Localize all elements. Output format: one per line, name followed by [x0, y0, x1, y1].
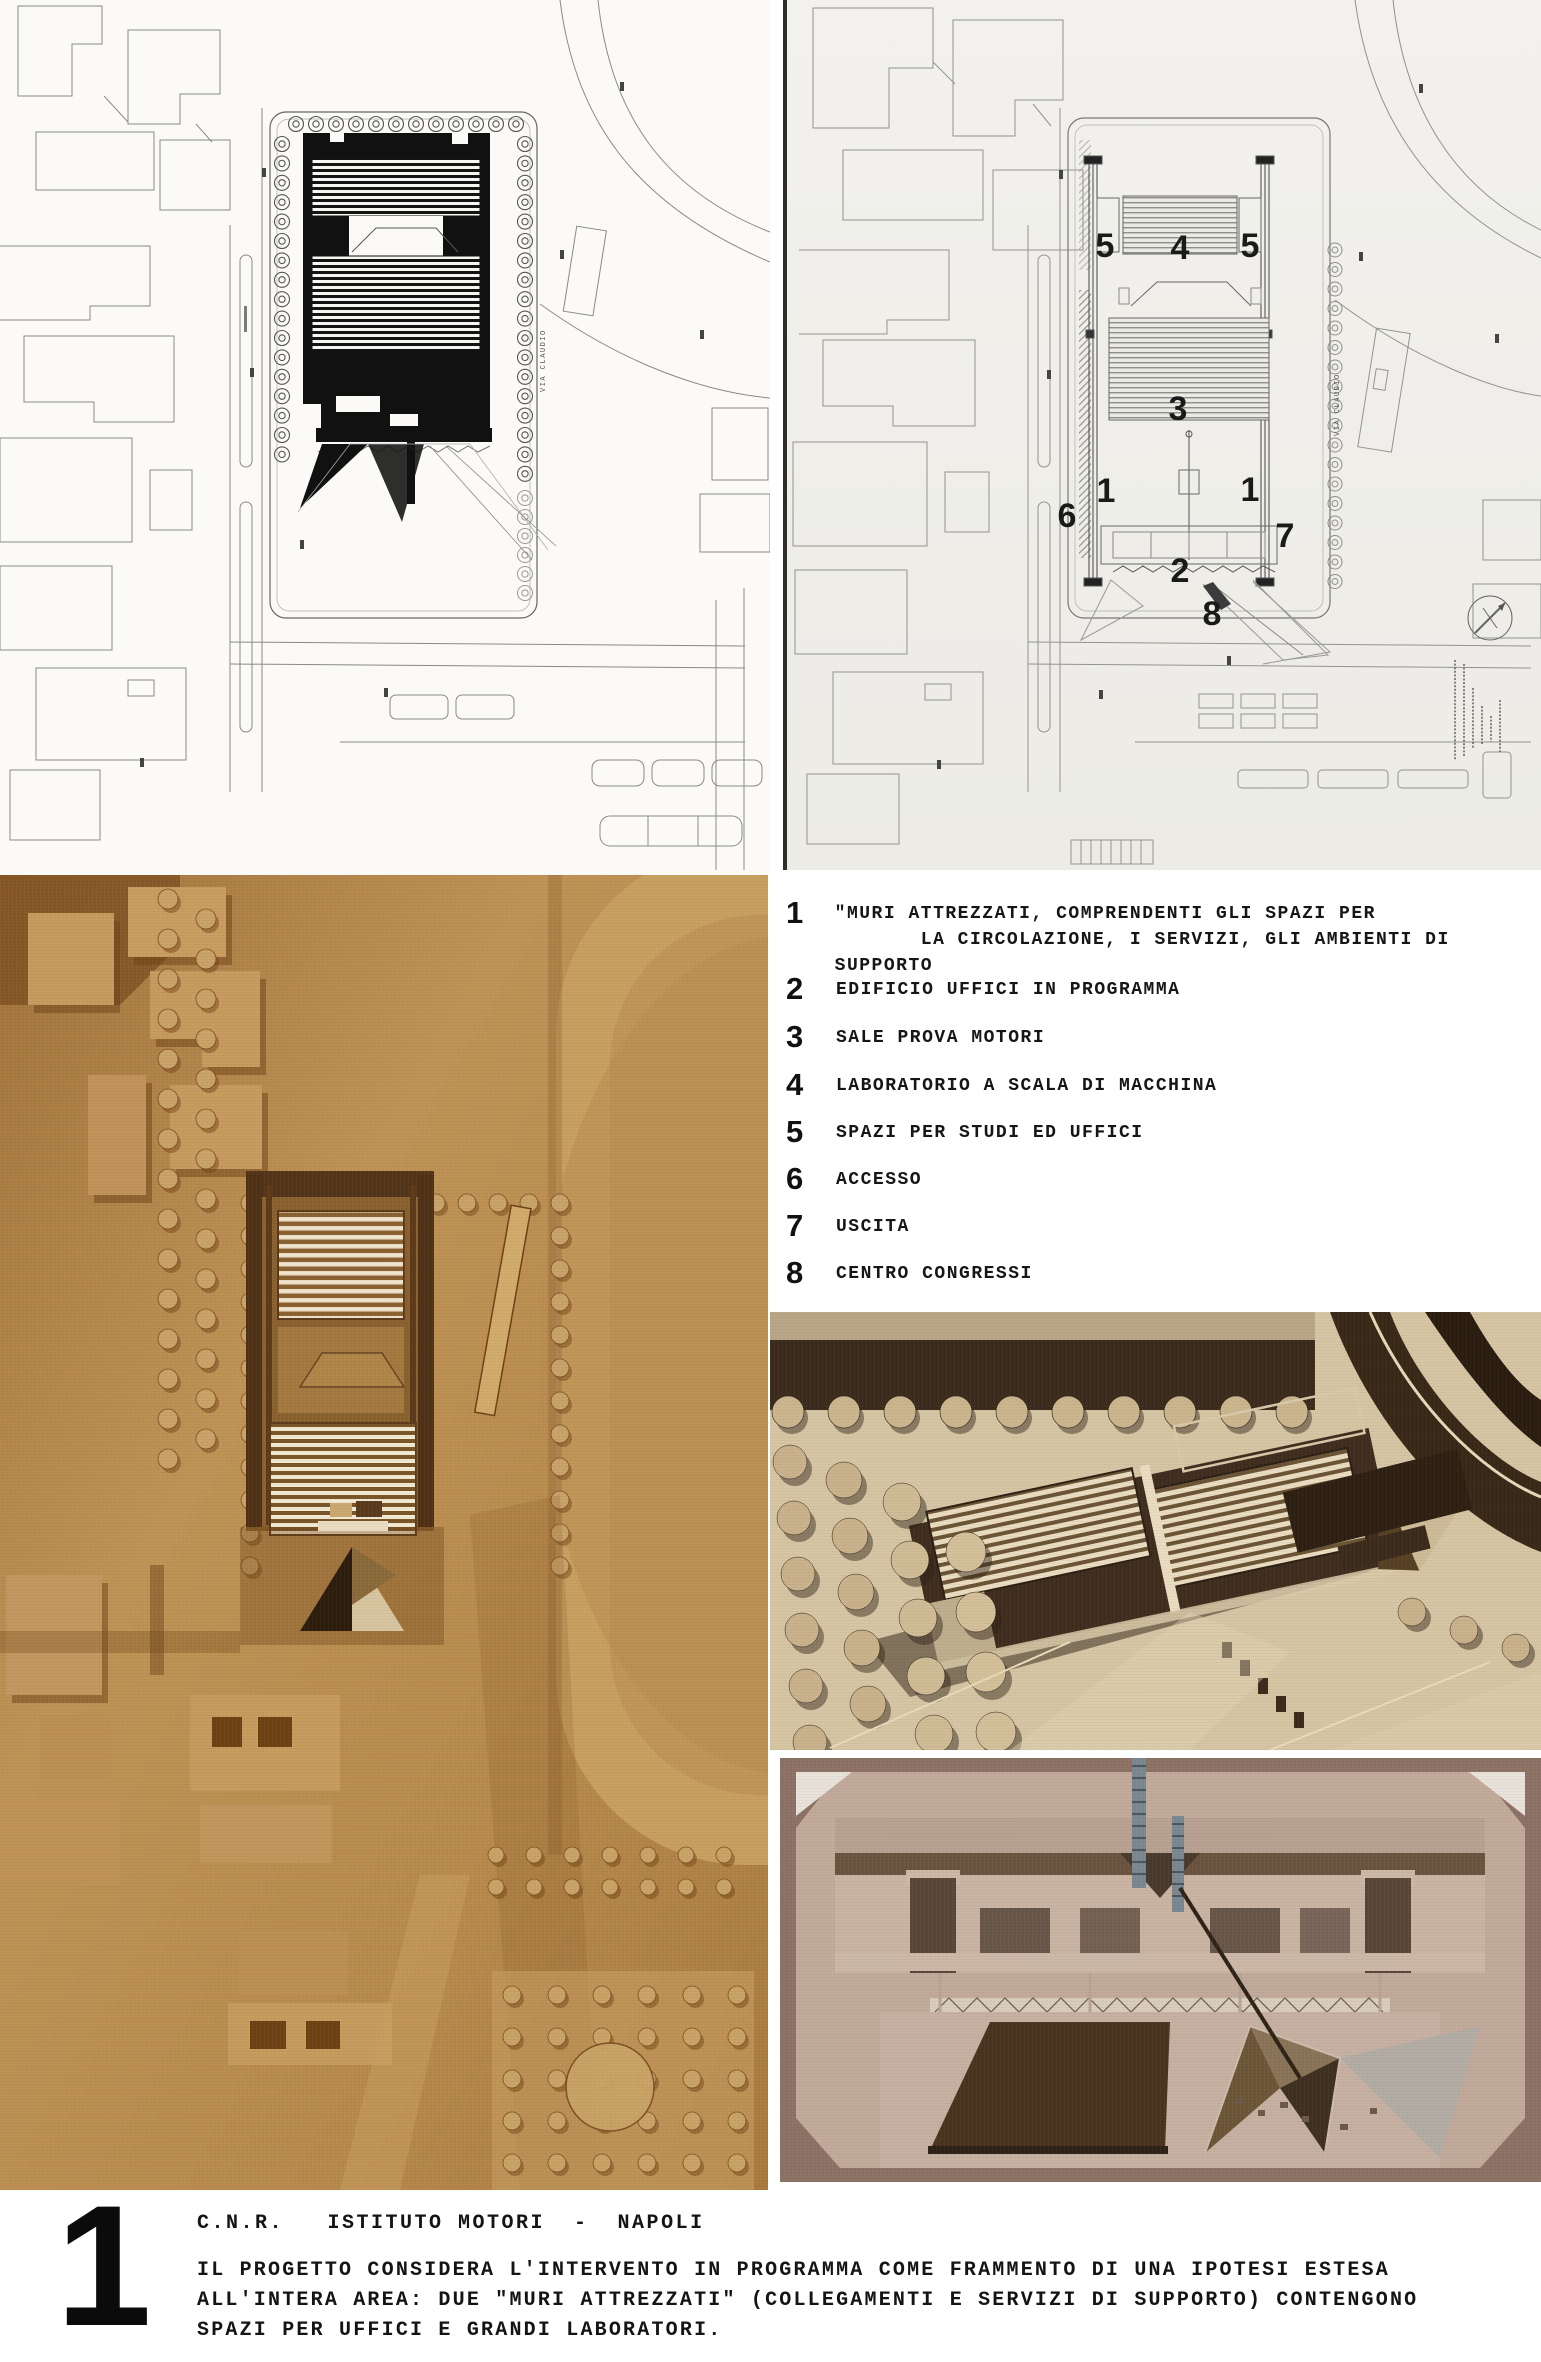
building-band — [835, 1853, 1485, 1973]
photo-model-perspective — [770, 1312, 1541, 1750]
model-building — [246, 1171, 434, 1535]
callout-5-left: 5 — [1096, 227, 1115, 265]
street-label-via-claudio: VIA CLAUDIO — [540, 329, 548, 392]
legend-item-8: 8CENTRO CONGRESSI — [786, 1252, 1033, 1290]
legend-num: 5 — [786, 1111, 836, 1149]
oval-track — [540, 875, 768, 1865]
callout-3: 3 — [1169, 390, 1188, 428]
site-plan-right-drawing: 5 4 5 3 1 1 6 7 2 8 — [783, 0, 1541, 870]
photo-model-top-view — [780, 1758, 1541, 2182]
model-perspective-drawing — [770, 1312, 1541, 1750]
legend-num: 2 — [786, 968, 836, 1006]
program-legend: 1"MURI ATTREZZATI, COMPRENDENTI GLI SPAZ… — [783, 884, 1541, 1304]
round-plaza — [566, 2043, 654, 2131]
legend-label: EDIFICIO UFFICI IN PROGRAMMA — [836, 968, 1180, 1003]
legend-num: 3 — [786, 1016, 836, 1054]
callout-8: 8 — [1203, 595, 1222, 633]
caption-block: 1 C.N.R. ISTITUTO MOTORI - NAPOLI IL PRO… — [0, 2190, 1541, 2362]
legend-num: 8 — [786, 1252, 836, 1290]
site-plan-left: VIA CLAUDIO — [0, 0, 770, 875]
upper-ground — [835, 1818, 1485, 1856]
callout-7: 7 — [1276, 517, 1295, 555]
model-top-view-drawing — [780, 1758, 1541, 2182]
legend-label: "MURI ATTREZZATI, COMPRENDENTI GLI SPAZI… — [835, 892, 1541, 979]
legend-label: LABORATORIO A SCALA DI MACCHINA — [836, 1064, 1217, 1099]
legend-label: SALE PROVA MOTORI — [836, 1016, 1045, 1051]
legend-num: 6 — [786, 1158, 836, 1196]
building-program — [1081, 156, 1330, 664]
street-label-via-claudio: VIA CLAUDIO — [1334, 373, 1342, 436]
tree-dots-road-a — [158, 889, 181, 1473]
scan-edge — [783, 0, 787, 870]
caption-body: IL PROGETTO CONSIDERA L'INTERVENTO IN PR… — [197, 2256, 1487, 2346]
callout-6: 6 — [1058, 497, 1077, 535]
legend-num: 4 — [786, 1064, 836, 1102]
legend-label: ACCESSO — [836, 1158, 922, 1193]
callout-2: 2 — [1171, 552, 1190, 590]
legend-label: SPAZI PER STUDI ED UFFICI — [836, 1111, 1144, 1146]
legend-item-5: 5SPAZI PER STUDI ED UFFICI — [786, 1111, 1144, 1149]
site-plan-right: 5 4 5 3 1 1 6 7 2 8 — [783, 0, 1541, 870]
legend-label: USCITA — [836, 1205, 910, 1240]
legend-item-7: 7USCITA — [786, 1205, 910, 1243]
legend-item-3: 3SALE PROVA MOTORI — [786, 1016, 1045, 1054]
presentation-board: VIA CLAUDIO — [0, 0, 1541, 2362]
pyramid-base-edge — [928, 2146, 1168, 2154]
legend-label: CENTRO CONGRESSI — [836, 1252, 1033, 1287]
legend-num: 1 — [786, 892, 835, 930]
figure-number: 1 — [56, 2186, 152, 2346]
callout-1-right: 1 — [1241, 471, 1260, 509]
caption-title: C.N.R. ISTITUTO MOTORI - NAPOLI — [197, 2212, 705, 2235]
callout-1-left: 1 — [1097, 472, 1116, 510]
north-compass-icon — [1468, 596, 1512, 640]
callout-5-right: 5 — [1241, 227, 1260, 265]
callout-4: 4 — [1171, 229, 1190, 267]
street-marks — [937, 84, 1499, 769]
legend-item-4: 4LABORATORIO A SCALA DI MACCHINA — [786, 1064, 1217, 1102]
photo-wood-model-aerial — [0, 875, 768, 2190]
site-plan-left-drawing: VIA CLAUDIO — [0, 0, 770, 875]
legend-item-2: 2EDIFICIO UFFICI IN PROGRAMMA — [786, 968, 1180, 1006]
bg-wall — [770, 1312, 1315, 1342]
legend-item-6: 6ACCESSO — [786, 1158, 922, 1196]
legend-num: 7 — [786, 1205, 836, 1243]
wood-model-drawing — [0, 875, 768, 2190]
micro-legend — [1455, 660, 1500, 760]
road-shadow — [0, 1631, 240, 1653]
context-buildings — [793, 0, 1541, 864]
legend-item-1: 1"MURI ATTREZZATI, COMPRENDENTI GLI SPAZ… — [786, 892, 1541, 979]
